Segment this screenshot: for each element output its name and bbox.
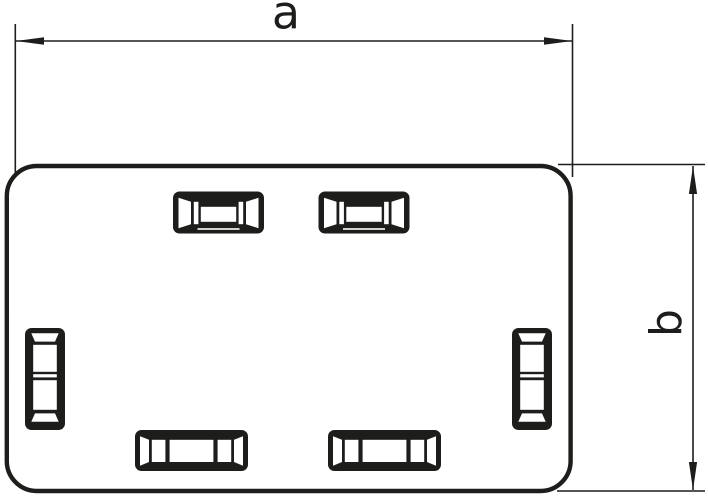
latch-slot-bottom-right — [328, 430, 441, 471]
part-body-outline — [7, 166, 571, 491]
dimension-b-arrow-bottom — [689, 462, 697, 490]
dimension-b-label: b — [641, 309, 692, 337]
dimension-a: a — [15, 0, 572, 177]
technical-drawing: a b — [0, 0, 708, 496]
part-body — [7, 166, 571, 491]
latch-slot-top-right — [319, 192, 410, 234]
latch-slot-bottom-left — [135, 430, 248, 471]
dimension-a-label: a — [272, 0, 300, 40]
dimension-a-arrow-right — [544, 37, 572, 45]
dimension-b: b — [557, 165, 705, 492]
latch-slot-left-side — [25, 328, 65, 430]
latch-slot-right-side — [512, 328, 552, 430]
dimension-a-arrow-left — [16, 37, 44, 45]
latch-slot-top-left — [173, 192, 264, 234]
dimension-b-arrow-top — [689, 166, 697, 194]
